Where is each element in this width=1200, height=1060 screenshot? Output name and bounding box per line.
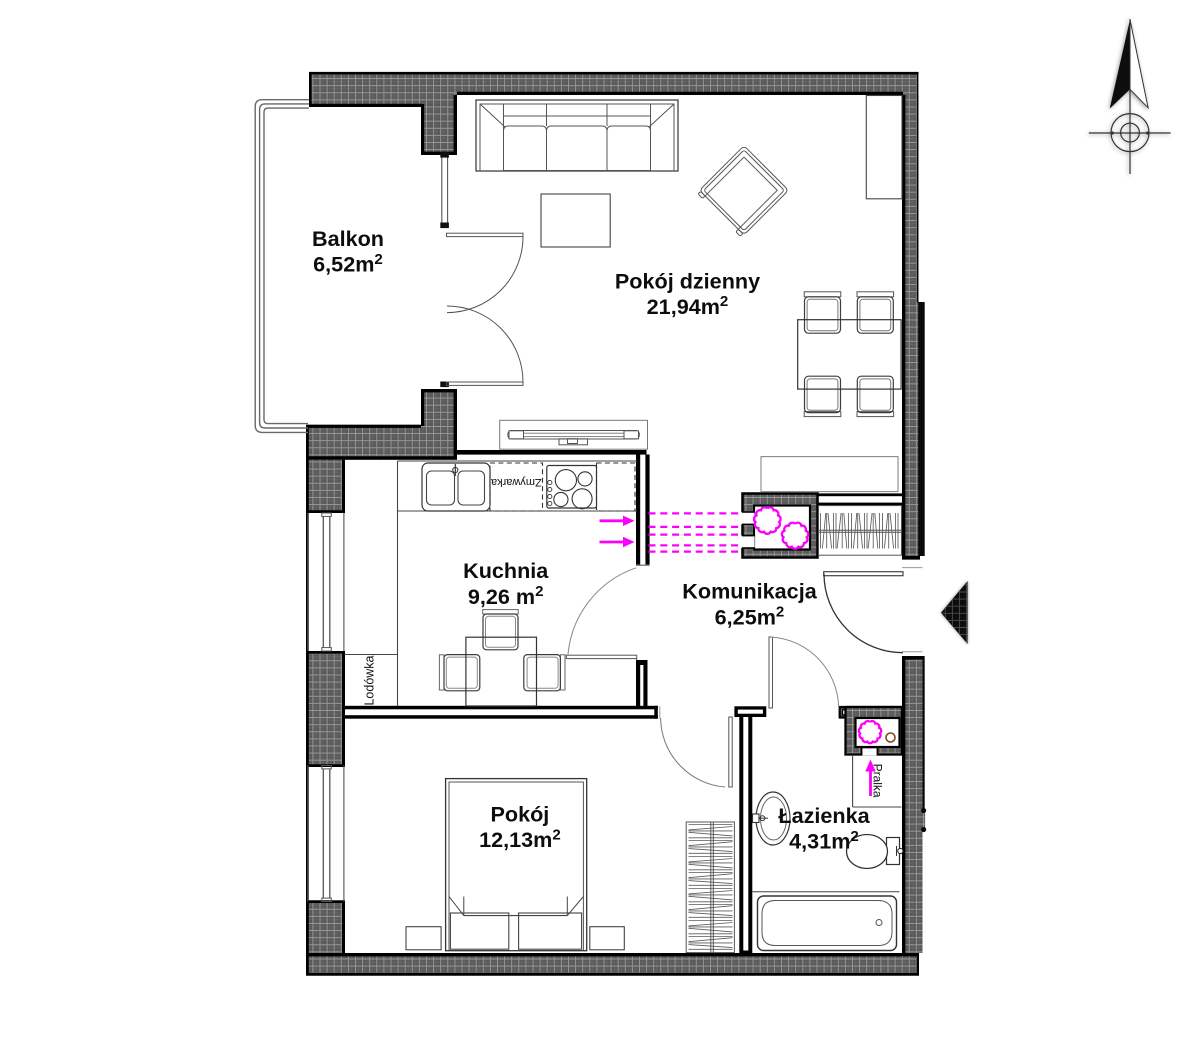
svg-text:12,13m2: 12,13m2: [479, 826, 561, 852]
svg-text:Komunikacja: Komunikacja: [682, 579, 817, 604]
svg-text:Zmywarka: Zmywarka: [490, 476, 542, 488]
svg-text:Pokój: Pokój: [491, 802, 550, 827]
svg-text:Lodówka: Lodówka: [363, 655, 377, 705]
svg-text:9,26 m2: 9,26 m2: [468, 583, 544, 609]
svg-text:21,94m2: 21,94m2: [647, 293, 729, 319]
svg-text:6,52m2: 6,52m2: [313, 251, 383, 277]
svg-text:Kuchnia: Kuchnia: [463, 558, 549, 583]
svg-text:Pralka: Pralka: [870, 764, 884, 798]
svg-text:Łazienka: Łazienka: [778, 803, 870, 828]
svg-text:6,25m2: 6,25m2: [715, 604, 785, 630]
svg-text:Balkon: Balkon: [312, 226, 384, 251]
svg-text:4,31m2: 4,31m2: [789, 828, 859, 854]
svg-text:Pokój dzienny: Pokój dzienny: [615, 268, 760, 293]
